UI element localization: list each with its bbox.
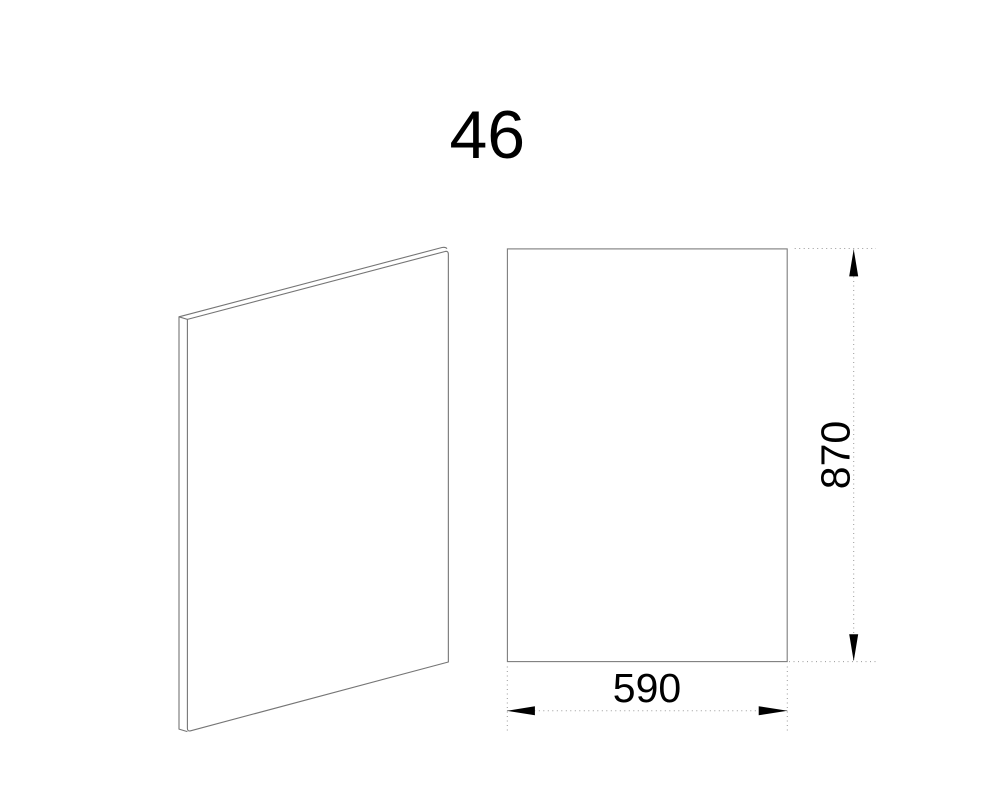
svg-text:46: 46	[449, 97, 525, 173]
svg-text:870: 870	[813, 421, 859, 489]
svg-text:590: 590	[613, 665, 681, 711]
